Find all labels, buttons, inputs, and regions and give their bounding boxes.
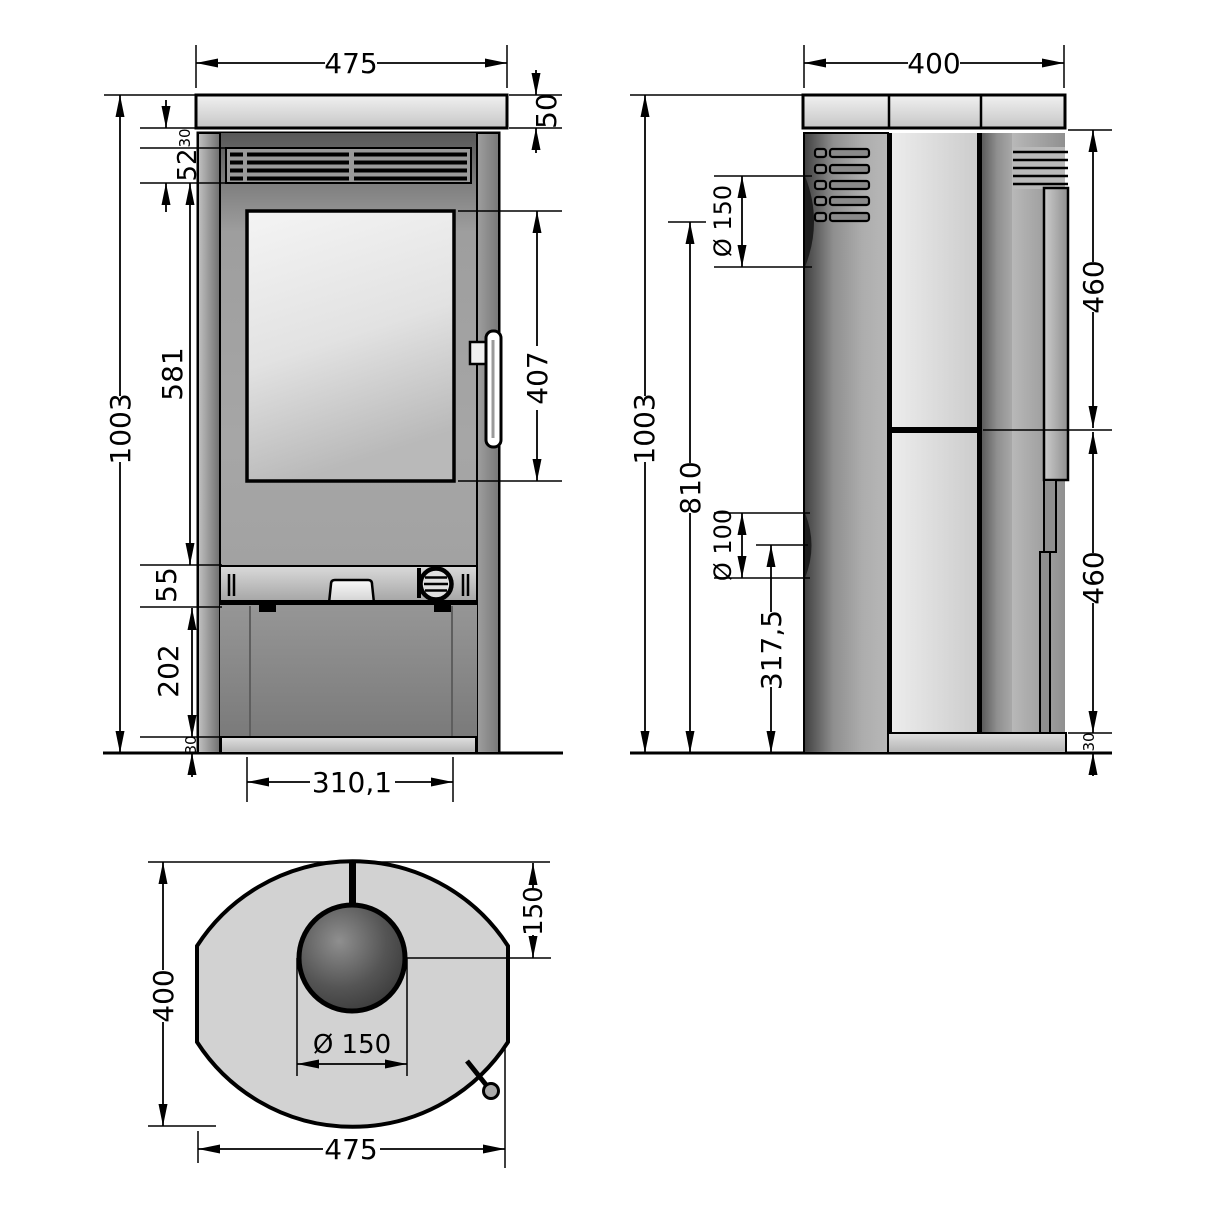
dim-front-top-plate: 50: [530, 93, 563, 129]
side-step-lower: [1040, 552, 1050, 733]
dim-front-glass: 407: [521, 351, 554, 404]
dim-front-control: 55: [150, 567, 183, 603]
front-lower-panel: [220, 605, 477, 737]
dim-side-outlet: Ø 100: [709, 509, 737, 581]
dim-side-upper: 460: [1077, 260, 1110, 313]
technical-drawing: 475 50 30 52 581 1003 55 202 30 310,1 40…: [0, 0, 1214, 1214]
dim-front-width: 475: [324, 47, 377, 80]
top-door-seam: [349, 861, 356, 906]
side-plinth: [888, 733, 1066, 753]
drawing-page: 475 50 30 52 581 1003 55 202 30 310,1 40…: [0, 0, 1214, 1214]
top-flue-outlet: [299, 905, 405, 1011]
side-top-plate: [803, 95, 1065, 128]
ash-tray-handle: [329, 580, 374, 603]
dim-side-height: 1003: [628, 393, 661, 464]
dim-front-vent: 52: [173, 148, 203, 181]
dim-top-flue: Ø 150: [313, 1030, 391, 1060]
dim-front-door-width: 310,1: [312, 766, 392, 799]
side-back-section: [804, 133, 888, 753]
side-view: [630, 95, 1112, 753]
dim-side-flue: Ø 150: [709, 185, 737, 257]
dim-front-lower-panel: 202: [152, 644, 185, 697]
side-column-divider: [892, 427, 978, 433]
dim-side-plinth: 30: [1080, 732, 1098, 751]
side-front-band: [982, 133, 1012, 733]
front-top-plate: [196, 95, 507, 128]
front-control-strip: [220, 566, 477, 605]
dim-front-top-gap: 30: [176, 128, 194, 147]
dim-side-lower: 460: [1077, 551, 1110, 604]
dim-front-plinth: 30: [182, 735, 200, 754]
front-glass-door: [247, 211, 454, 481]
dim-side-flue-axis: 810: [674, 461, 707, 514]
front-vent-grille: [226, 148, 471, 183]
front-left-pillar: [198, 133, 220, 753]
side-front-vent-slats: [1012, 147, 1068, 189]
door-latch: [470, 342, 487, 364]
dim-top-width: 475: [324, 1133, 377, 1166]
side-glass-edge: [1044, 188, 1068, 480]
dim-side-outlet-axis: 317,5: [755, 610, 788, 690]
dim-top-flue-offset: 150: [519, 886, 549, 936]
side-step-upper: [1044, 480, 1056, 552]
front-plinth: [221, 737, 476, 753]
dim-front-upper-body: 581: [156, 347, 189, 400]
dim-top-height: 400: [147, 969, 180, 1022]
dim-side-depth: 400: [907, 47, 960, 80]
dim-front-height: 1003: [104, 393, 137, 464]
top-view: [197, 861, 551, 1127]
